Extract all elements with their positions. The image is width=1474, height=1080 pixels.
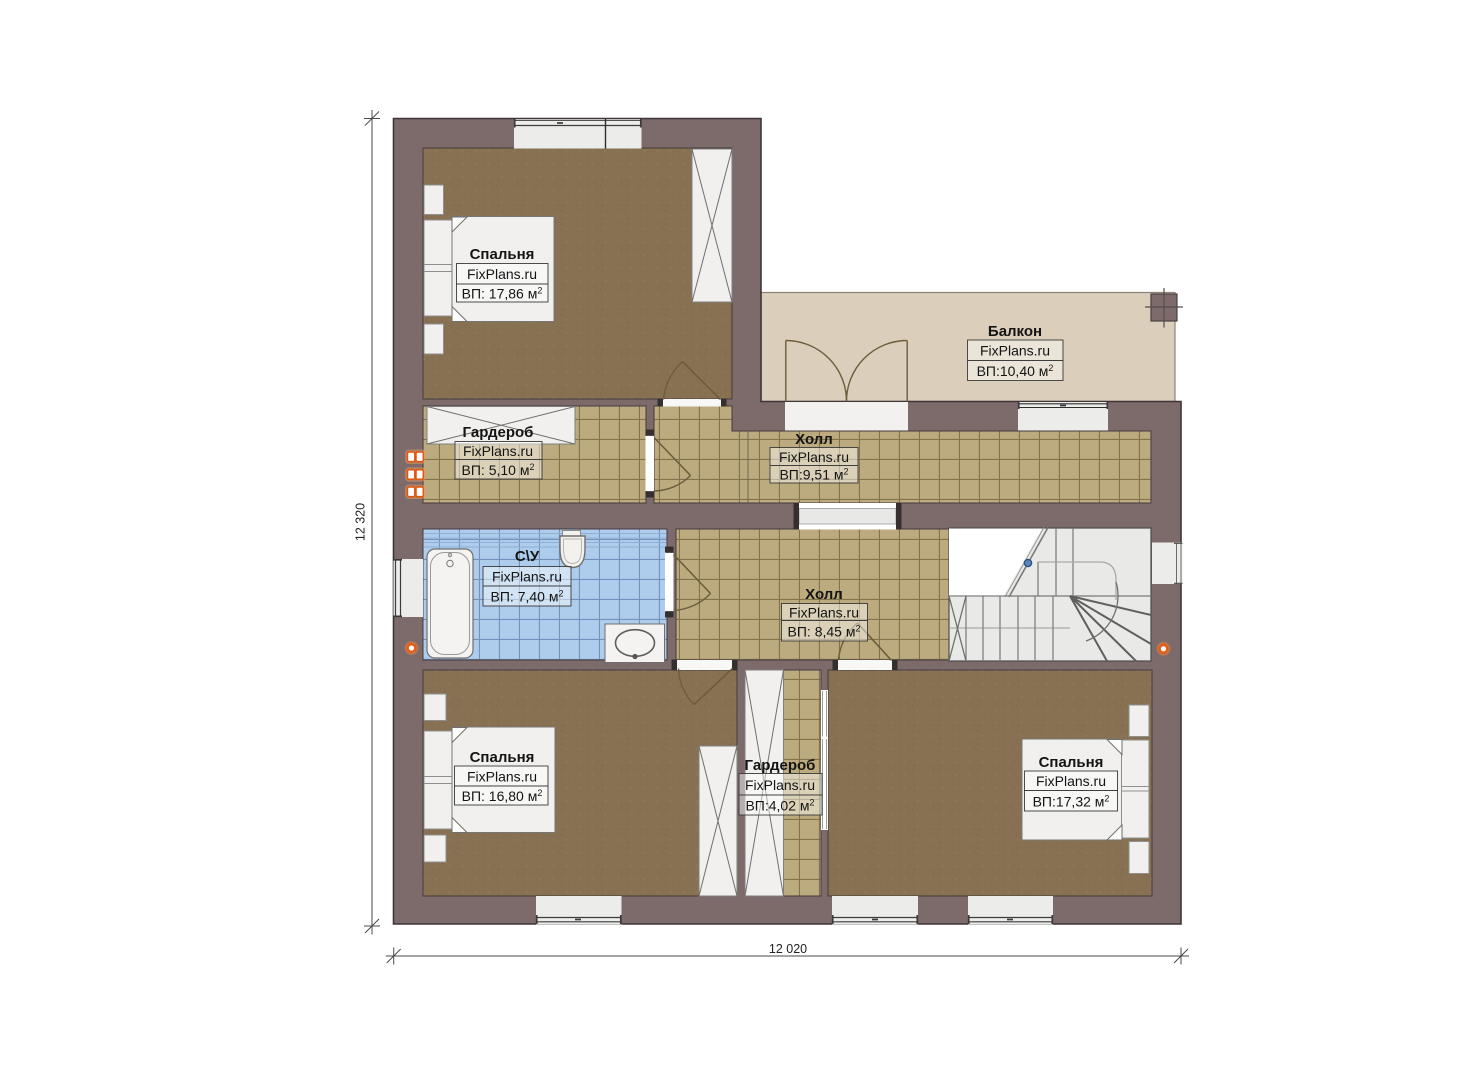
svg-text:Гардероб: Гардероб xyxy=(463,424,534,441)
svg-text:Гардероб: Гардероб xyxy=(745,757,816,774)
svg-text:ВП:17,32 м2: ВП:17,32 м2 xyxy=(1033,794,1110,810)
svg-text:Спальня: Спальня xyxy=(470,246,535,263)
svg-text:Спальня: Спальня xyxy=(470,749,535,766)
svg-text:ВП:10,40 м2: ВП:10,40 м2 xyxy=(977,363,1054,379)
svg-text:ВП: 17,86 м2: ВП: 17,86 м2 xyxy=(462,286,543,302)
svg-text:FixPlans.ru: FixPlans.ru xyxy=(467,266,537,282)
svg-text:Холл: Холл xyxy=(805,586,843,603)
svg-text:ВП: 16,80 м2: ВП: 16,80 м2 xyxy=(462,788,543,804)
svg-text:FixPlans.ru: FixPlans.ru xyxy=(1036,773,1106,789)
svg-text:С\У: С\У xyxy=(515,548,540,565)
svg-text:Холл: Холл xyxy=(795,431,833,448)
svg-text:ВП: 7,40 м2: ВП: 7,40 м2 xyxy=(491,589,564,605)
svg-text:Спальня: Спальня xyxy=(1039,754,1104,771)
svg-text:FixPlans.ru: FixPlans.ru xyxy=(779,449,849,465)
svg-text:Балкон: Балкон xyxy=(988,323,1042,340)
svg-text:FixPlans.ru: FixPlans.ru xyxy=(789,605,859,621)
svg-text:FixPlans.ru: FixPlans.ru xyxy=(467,769,537,785)
svg-text:12 020: 12 020 xyxy=(769,942,807,956)
svg-text:ВП:9,51 м2: ВП:9,51 м2 xyxy=(779,467,848,483)
svg-text:12 320: 12 320 xyxy=(354,503,368,541)
svg-text:FixPlans.ru: FixPlans.ru xyxy=(492,569,562,585)
svg-text:ВП: 8,45 м2: ВП: 8,45 м2 xyxy=(788,624,861,640)
svg-text:FixPlans.ru: FixPlans.ru xyxy=(463,443,533,459)
svg-text:FixPlans.ru: FixPlans.ru xyxy=(745,777,815,793)
svg-text:FixPlans.ru: FixPlans.ru xyxy=(980,343,1050,359)
svg-text:ВП:4,02 м2: ВП:4,02 м2 xyxy=(745,798,814,814)
svg-text:ВП: 5,10 м2: ВП: 5,10 м2 xyxy=(462,462,535,478)
